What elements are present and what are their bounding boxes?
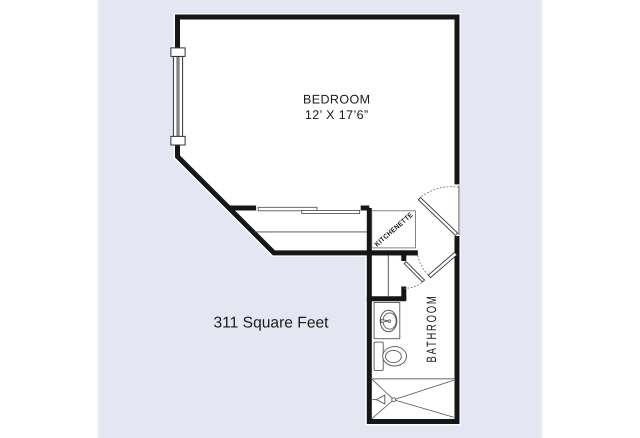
svg-text:BATHROOM: BATHROOM <box>424 295 439 363</box>
svg-text:12’ X 17’6”: 12’ X 17’6” <box>305 108 369 122</box>
svg-text:BEDROOM: BEDROOM <box>303 93 370 107</box>
svg-text:311 Square Feet: 311 Square Feet <box>213 315 329 332</box>
